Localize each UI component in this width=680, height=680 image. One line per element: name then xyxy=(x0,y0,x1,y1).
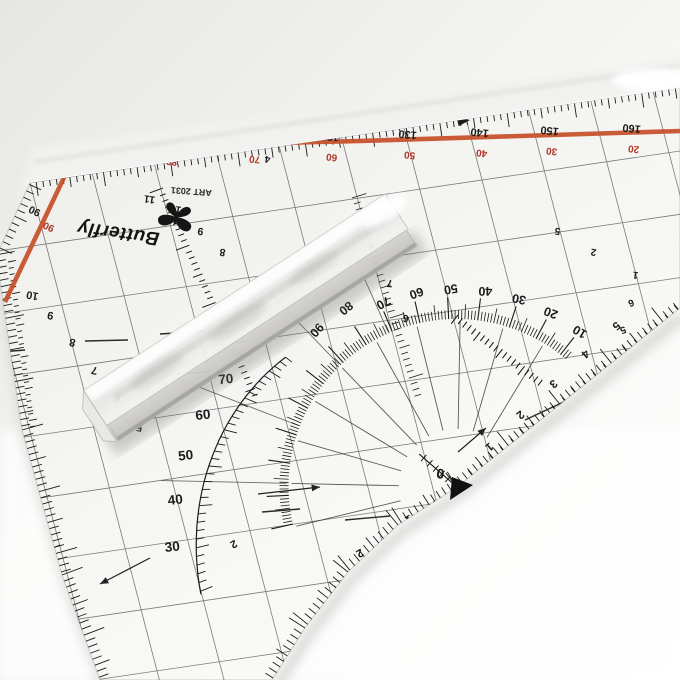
dash-mark xyxy=(85,340,128,341)
degree-label-black: 160 xyxy=(622,121,642,135)
inner-scale-number: 6 xyxy=(402,312,409,324)
set-square-scene: 100110120130140150160807060504030209090 … xyxy=(0,0,680,680)
degree-label-red: 30 xyxy=(545,145,558,157)
degree-label-black: 130 xyxy=(398,127,418,141)
degree-label-red: 70 xyxy=(248,153,261,165)
degree-label-black: 140 xyxy=(470,125,490,139)
protractor-outer-label: 40 xyxy=(478,284,492,298)
protractor-outer-label: 50 xyxy=(443,281,459,297)
degree-label-black: 150 xyxy=(540,123,560,137)
degree-label-red: 20 xyxy=(627,142,640,154)
photo-of-set-square: 100110120130140150160807060504030209090 … xyxy=(0,0,680,680)
left-edge-number: 10 xyxy=(25,288,39,302)
protractor-inner-label: 30 xyxy=(164,538,181,554)
protractor-inner-label: 50 xyxy=(177,447,194,463)
degree-label-red: 40 xyxy=(475,146,488,158)
degree-label-red: 50 xyxy=(403,148,416,160)
inner-scale-number: 11 xyxy=(143,192,156,205)
protractor-inner-label: 40 xyxy=(167,491,184,507)
degree-label-red: 60 xyxy=(325,151,338,163)
protractor-inner-label: 60 xyxy=(195,407,212,423)
protractor-outer-label: 30 xyxy=(511,291,527,307)
